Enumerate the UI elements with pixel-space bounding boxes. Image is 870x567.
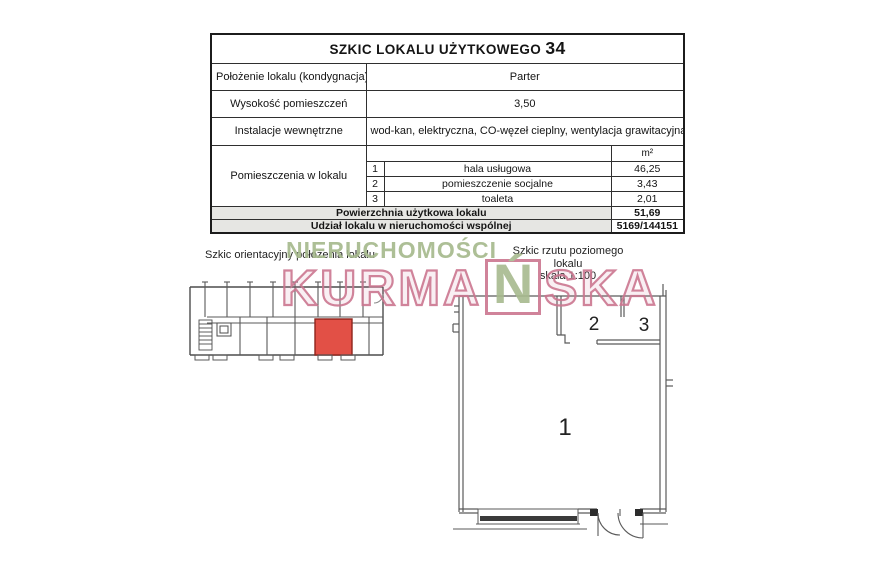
- room-3-plan-label: 3: [639, 315, 650, 336]
- scanned-document-page: SZKIC LOKALU UŻYTKOWEGO 34 Położenie lok…: [0, 0, 870, 567]
- room-3-no: 3: [366, 191, 384, 206]
- document-title-text: SZKIC LOKALU UŻYTKOWEGO: [329, 42, 541, 57]
- orientation-plan: [183, 280, 393, 380]
- double-door: [590, 509, 643, 538]
- floor-plan-svg: 1 2 3: [450, 280, 675, 560]
- orientation-sketch-caption: Szkic orientacyjny położenia lokalu: [205, 249, 375, 261]
- highlighted-premises: [315, 319, 352, 355]
- usable-area-label: Powierzchnia użytkowa lokalu: [211, 206, 611, 219]
- premises-number: 34: [545, 38, 565, 58]
- usable-area-value: 51,69: [611, 206, 684, 219]
- room-1-no: 1: [366, 161, 384, 176]
- document-title: SZKIC LOKALU UŻYTKOWEGO 34: [211, 34, 684, 63]
- row-value-height: 3,50: [366, 90, 684, 117]
- table-row: Położenie lokalu (kondygnacja) Parter: [211, 63, 684, 90]
- floor-plan: 1 2 3: [450, 280, 675, 565]
- table-row: Instalacje wewnętrzne wod-kan, elektrycz…: [211, 117, 684, 145]
- entrance-stubs: [195, 355, 355, 360]
- row-label-height: Wysokość pomieszczeń: [211, 90, 366, 117]
- room-2-name: pomieszczenie socjalne: [384, 176, 611, 191]
- room-2-no: 2: [366, 176, 384, 191]
- room-3-name: toaleta: [384, 191, 611, 206]
- row-label-installations: Instalacje wewnętrzne: [211, 117, 366, 145]
- unit-header: m²: [611, 145, 684, 161]
- floor-plan-scale: skala 1:100: [497, 270, 639, 283]
- room-1-area: 46,25: [611, 161, 684, 176]
- room-1-plan-label: 1: [558, 414, 571, 441]
- property-data-table: SZKIC LOKALU UŻYTKOWEGO 34 Położenie lok…: [210, 33, 685, 234]
- room-1-name: hala usługowa: [384, 161, 611, 176]
- room-2-plan-label: 2: [589, 314, 600, 335]
- table-row: Pomieszczenia w lokalu m²: [211, 145, 684, 161]
- floor-plan-caption: Szkic rzutu poziomego lokalu skala 1:100: [497, 245, 639, 283]
- row-value-location: Parter: [366, 63, 684, 90]
- row-value-installations: wod-kan, elektryczna, CO-węzeł cieplny, …: [366, 117, 684, 145]
- room-3-area: 2,01: [611, 191, 684, 206]
- share-value: 5169/144151: [611, 219, 684, 233]
- floor-plan-caption-line1: Szkic rzutu poziomego lokalu: [497, 245, 639, 270]
- empty-cell: [366, 145, 611, 161]
- rooms-section-label: Pomieszczenia w lokalu: [211, 145, 366, 206]
- table-row: Wysokość pomieszczeń 3,50: [211, 90, 684, 117]
- row-label-location: Położenie lokalu (kondygnacja): [211, 63, 366, 90]
- stairwell: [199, 320, 212, 350]
- orientation-plan-svg: [183, 280, 393, 375]
- table-row: Udział lokalu w nieruchomości wspólnej 5…: [211, 219, 684, 233]
- shaft: [217, 323, 231, 336]
- share-label: Udział lokalu w nieruchomości wspólnej: [211, 219, 611, 233]
- room-2-area: 3,43: [611, 176, 684, 191]
- table-row: Powierzchnia użytkowa lokalu 51,69: [211, 206, 684, 219]
